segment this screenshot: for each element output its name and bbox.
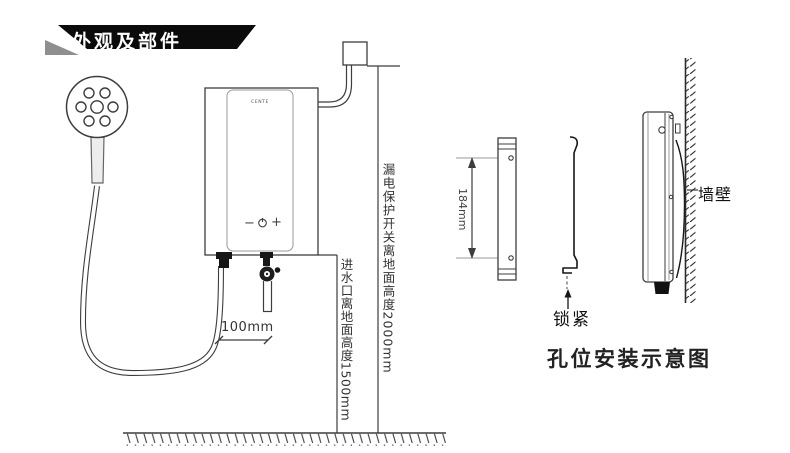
shower-hose [83, 186, 221, 373]
control-minus-label: − [244, 217, 255, 230]
power-cable [318, 65, 352, 107]
outlet-fitting [216, 252, 232, 268]
power-icon [257, 217, 268, 228]
wall-label: 墙壁 [698, 181, 732, 205]
dimension-184mm [468, 157, 476, 259]
brand-logo: CENTE [227, 100, 293, 105]
hole-distance-label: 184mm [457, 188, 468, 230]
breaker-height-label: 漏电保护开关离地面高度2000mm [381, 163, 394, 374]
wall-section [686, 58, 699, 303]
control-plus-label: + [271, 216, 282, 229]
bracket-side-profile [563, 137, 577, 289]
shower-head [67, 77, 128, 184]
inlet-valve [260, 252, 281, 312]
inlet-height-label: 进水口离地面高度1500mm [339, 258, 352, 421]
manual-page: 外观及部件 [0, 0, 790, 453]
heater-side-view [643, 112, 685, 294]
pipe-spacing-label: 100mm [221, 320, 274, 335]
ground-line [123, 433, 446, 446]
breaker-box [343, 42, 367, 65]
heater-front-view [205, 88, 318, 255]
hole-position-caption: 孔位安装示意图 [547, 343, 712, 373]
dimension-100mm [215, 336, 272, 344]
lock-label: 锁紧 [553, 305, 591, 330]
